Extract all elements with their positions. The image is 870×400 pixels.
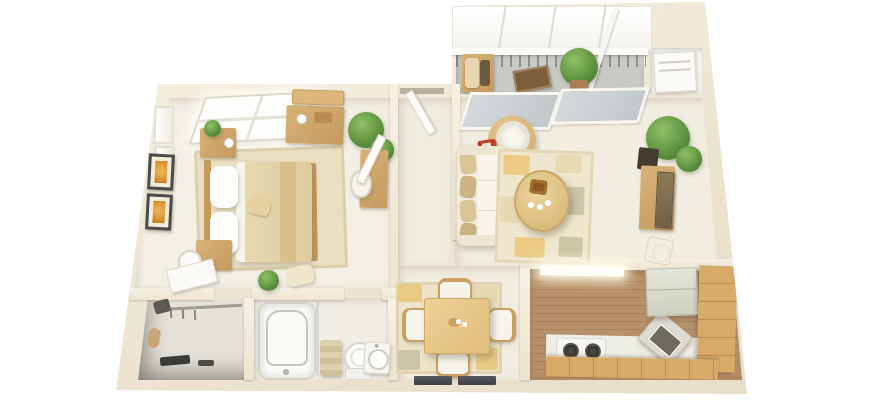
art-canvas xyxy=(152,201,165,224)
decor-bowl xyxy=(529,179,548,195)
tub-basin xyxy=(266,310,308,366)
sofa-back-cushion xyxy=(459,199,476,222)
sink-basin xyxy=(367,349,389,371)
shower-glass-divider xyxy=(316,302,319,376)
chair-side-pillow xyxy=(480,60,490,86)
sofa-back-cushion xyxy=(459,175,476,198)
floor-vent-1 xyxy=(414,376,452,385)
rug-patch-sage xyxy=(398,350,420,370)
dresser xyxy=(285,105,344,145)
floor-plan-scene xyxy=(0,0,870,400)
balcony-glass-canopy xyxy=(452,6,652,52)
rug-patch-mustard xyxy=(514,237,545,258)
art-canvas xyxy=(154,161,167,184)
framed-art-1 xyxy=(147,153,175,190)
bed-duvet xyxy=(236,162,312,262)
dining-chair-right xyxy=(488,308,516,342)
washer-appliance xyxy=(653,51,697,93)
washer-groove xyxy=(659,68,691,72)
kitchen-cabinets-right xyxy=(697,266,738,373)
tv-panel xyxy=(655,172,675,229)
wall-kitchen-left xyxy=(520,268,530,380)
rug-patch-mustard xyxy=(503,155,530,176)
table-centerpiece-dot xyxy=(462,322,467,327)
wall-closet-bath xyxy=(244,298,254,380)
washer-groove xyxy=(658,60,690,64)
fridge-seam xyxy=(647,288,697,291)
nightstand-mug xyxy=(224,138,234,148)
cup xyxy=(537,204,543,210)
table-centerpiece-dot xyxy=(456,319,461,324)
apartment-shell xyxy=(0,0,870,400)
cup xyxy=(528,202,534,208)
towel-stack xyxy=(320,340,342,376)
dresser-decor-round xyxy=(296,113,307,124)
nightstand-plant xyxy=(204,120,221,137)
balcony-outdoor-chair xyxy=(462,54,494,92)
rug-patch-tan xyxy=(555,154,582,173)
tub-faucet xyxy=(283,369,289,375)
canopy-mullion xyxy=(547,5,556,53)
dresser-wall-shelf xyxy=(292,89,344,106)
chair-cushion xyxy=(465,58,479,88)
living-corner-plant-b xyxy=(676,146,702,172)
bedroom-exit-plant xyxy=(258,270,279,291)
rug-patch-sage xyxy=(558,237,583,258)
bathtub xyxy=(258,302,316,380)
canopy-mullion xyxy=(497,5,506,53)
closet-shoes-2 xyxy=(198,360,214,366)
floor-vent-2 xyxy=(458,376,496,385)
sink-faucet xyxy=(375,344,379,348)
kitchen-cabinets-bottom xyxy=(546,356,718,380)
bed-runner xyxy=(280,162,296,262)
refrigerator xyxy=(645,267,699,317)
living-window-right xyxy=(550,87,650,125)
pedestal-sink xyxy=(363,341,391,374)
wall-bedroom-hall xyxy=(390,84,398,290)
dresser-tray xyxy=(314,112,332,124)
dining-chair-bottom xyxy=(436,350,470,378)
cup xyxy=(545,200,551,206)
framed-art-2 xyxy=(145,193,173,230)
kitchen-light-bar xyxy=(540,265,624,276)
bed-pillow-1 xyxy=(210,166,238,208)
sketch-stool-inner xyxy=(652,244,670,262)
coffee-table xyxy=(514,170,570,232)
bedroom-side-window-1 xyxy=(153,106,174,145)
rug-patch-mustard xyxy=(398,284,422,302)
